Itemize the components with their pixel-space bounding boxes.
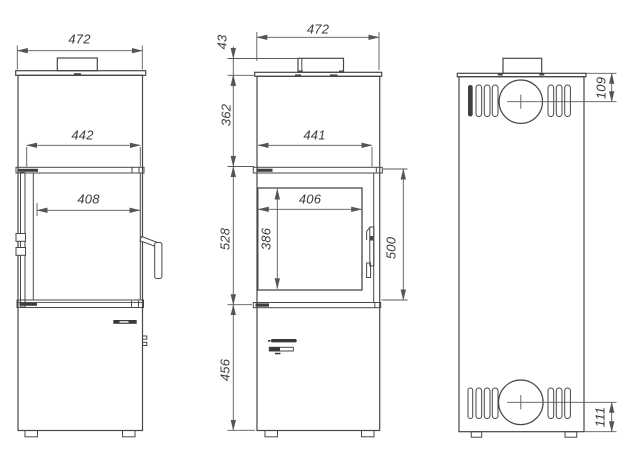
technical-drawing-canvas: 472 442 408 472 43 362 441 406 386 528 5… bbox=[0, 0, 624, 460]
drawing-linework bbox=[0, 0, 624, 460]
stove-foot bbox=[362, 431, 375, 437]
dim-front-inner-width: 441 bbox=[303, 128, 325, 141]
dim-front-glass-height: 386 bbox=[260, 227, 273, 249]
dim-front-base-height: 456 bbox=[218, 359, 231, 381]
stove-foot bbox=[265, 431, 278, 437]
dim-front-firebox-height: 528 bbox=[218, 228, 231, 250]
dim-front-upper-height: 362 bbox=[220, 104, 233, 126]
side-door-handle-grip bbox=[155, 243, 162, 279]
back-body-outline bbox=[459, 77, 584, 432]
stove-foot bbox=[25, 431, 38, 437]
front-flue-collar-box bbox=[298, 58, 344, 72]
air-vent-slots-bottom bbox=[468, 388, 570, 419]
hinge-knuckle bbox=[16, 248, 26, 256]
front-ledge bbox=[253, 303, 380, 308]
dim-side-overall-width: 472 bbox=[68, 33, 90, 46]
hinge-knuckle bbox=[16, 234, 26, 242]
front-louver-strip bbox=[253, 167, 382, 173]
dim-front-overall-width: 472 bbox=[307, 22, 329, 35]
side-latch-tick bbox=[143, 342, 147, 345]
stove-foot bbox=[471, 432, 481, 438]
side-view bbox=[16, 58, 162, 437]
side-latch-tick bbox=[143, 336, 147, 339]
dim-front-glass-width: 406 bbox=[299, 193, 321, 206]
dim-front-door-height: 500 bbox=[384, 236, 397, 258]
dim-side-top-width: 442 bbox=[71, 128, 93, 141]
dim-side-glass-depth: 408 bbox=[77, 193, 99, 206]
side-flue-collar-box bbox=[57, 58, 97, 71]
air-vent-slots-top bbox=[468, 85, 570, 117]
front-brand-label bbox=[271, 339, 297, 342]
dim-back-inlet-offset-bottom: 111 bbox=[594, 406, 607, 426]
dim-back-flue-offset-top: 109 bbox=[594, 77, 607, 99]
back-view bbox=[457, 58, 586, 437]
stove-foot bbox=[565, 432, 577, 438]
back-flue-collar-box bbox=[503, 58, 542, 73]
dim-front-collar-height: 43 bbox=[215, 35, 228, 50]
dimension-lines bbox=[17, 32, 616, 432]
stove-foot bbox=[123, 431, 136, 437]
